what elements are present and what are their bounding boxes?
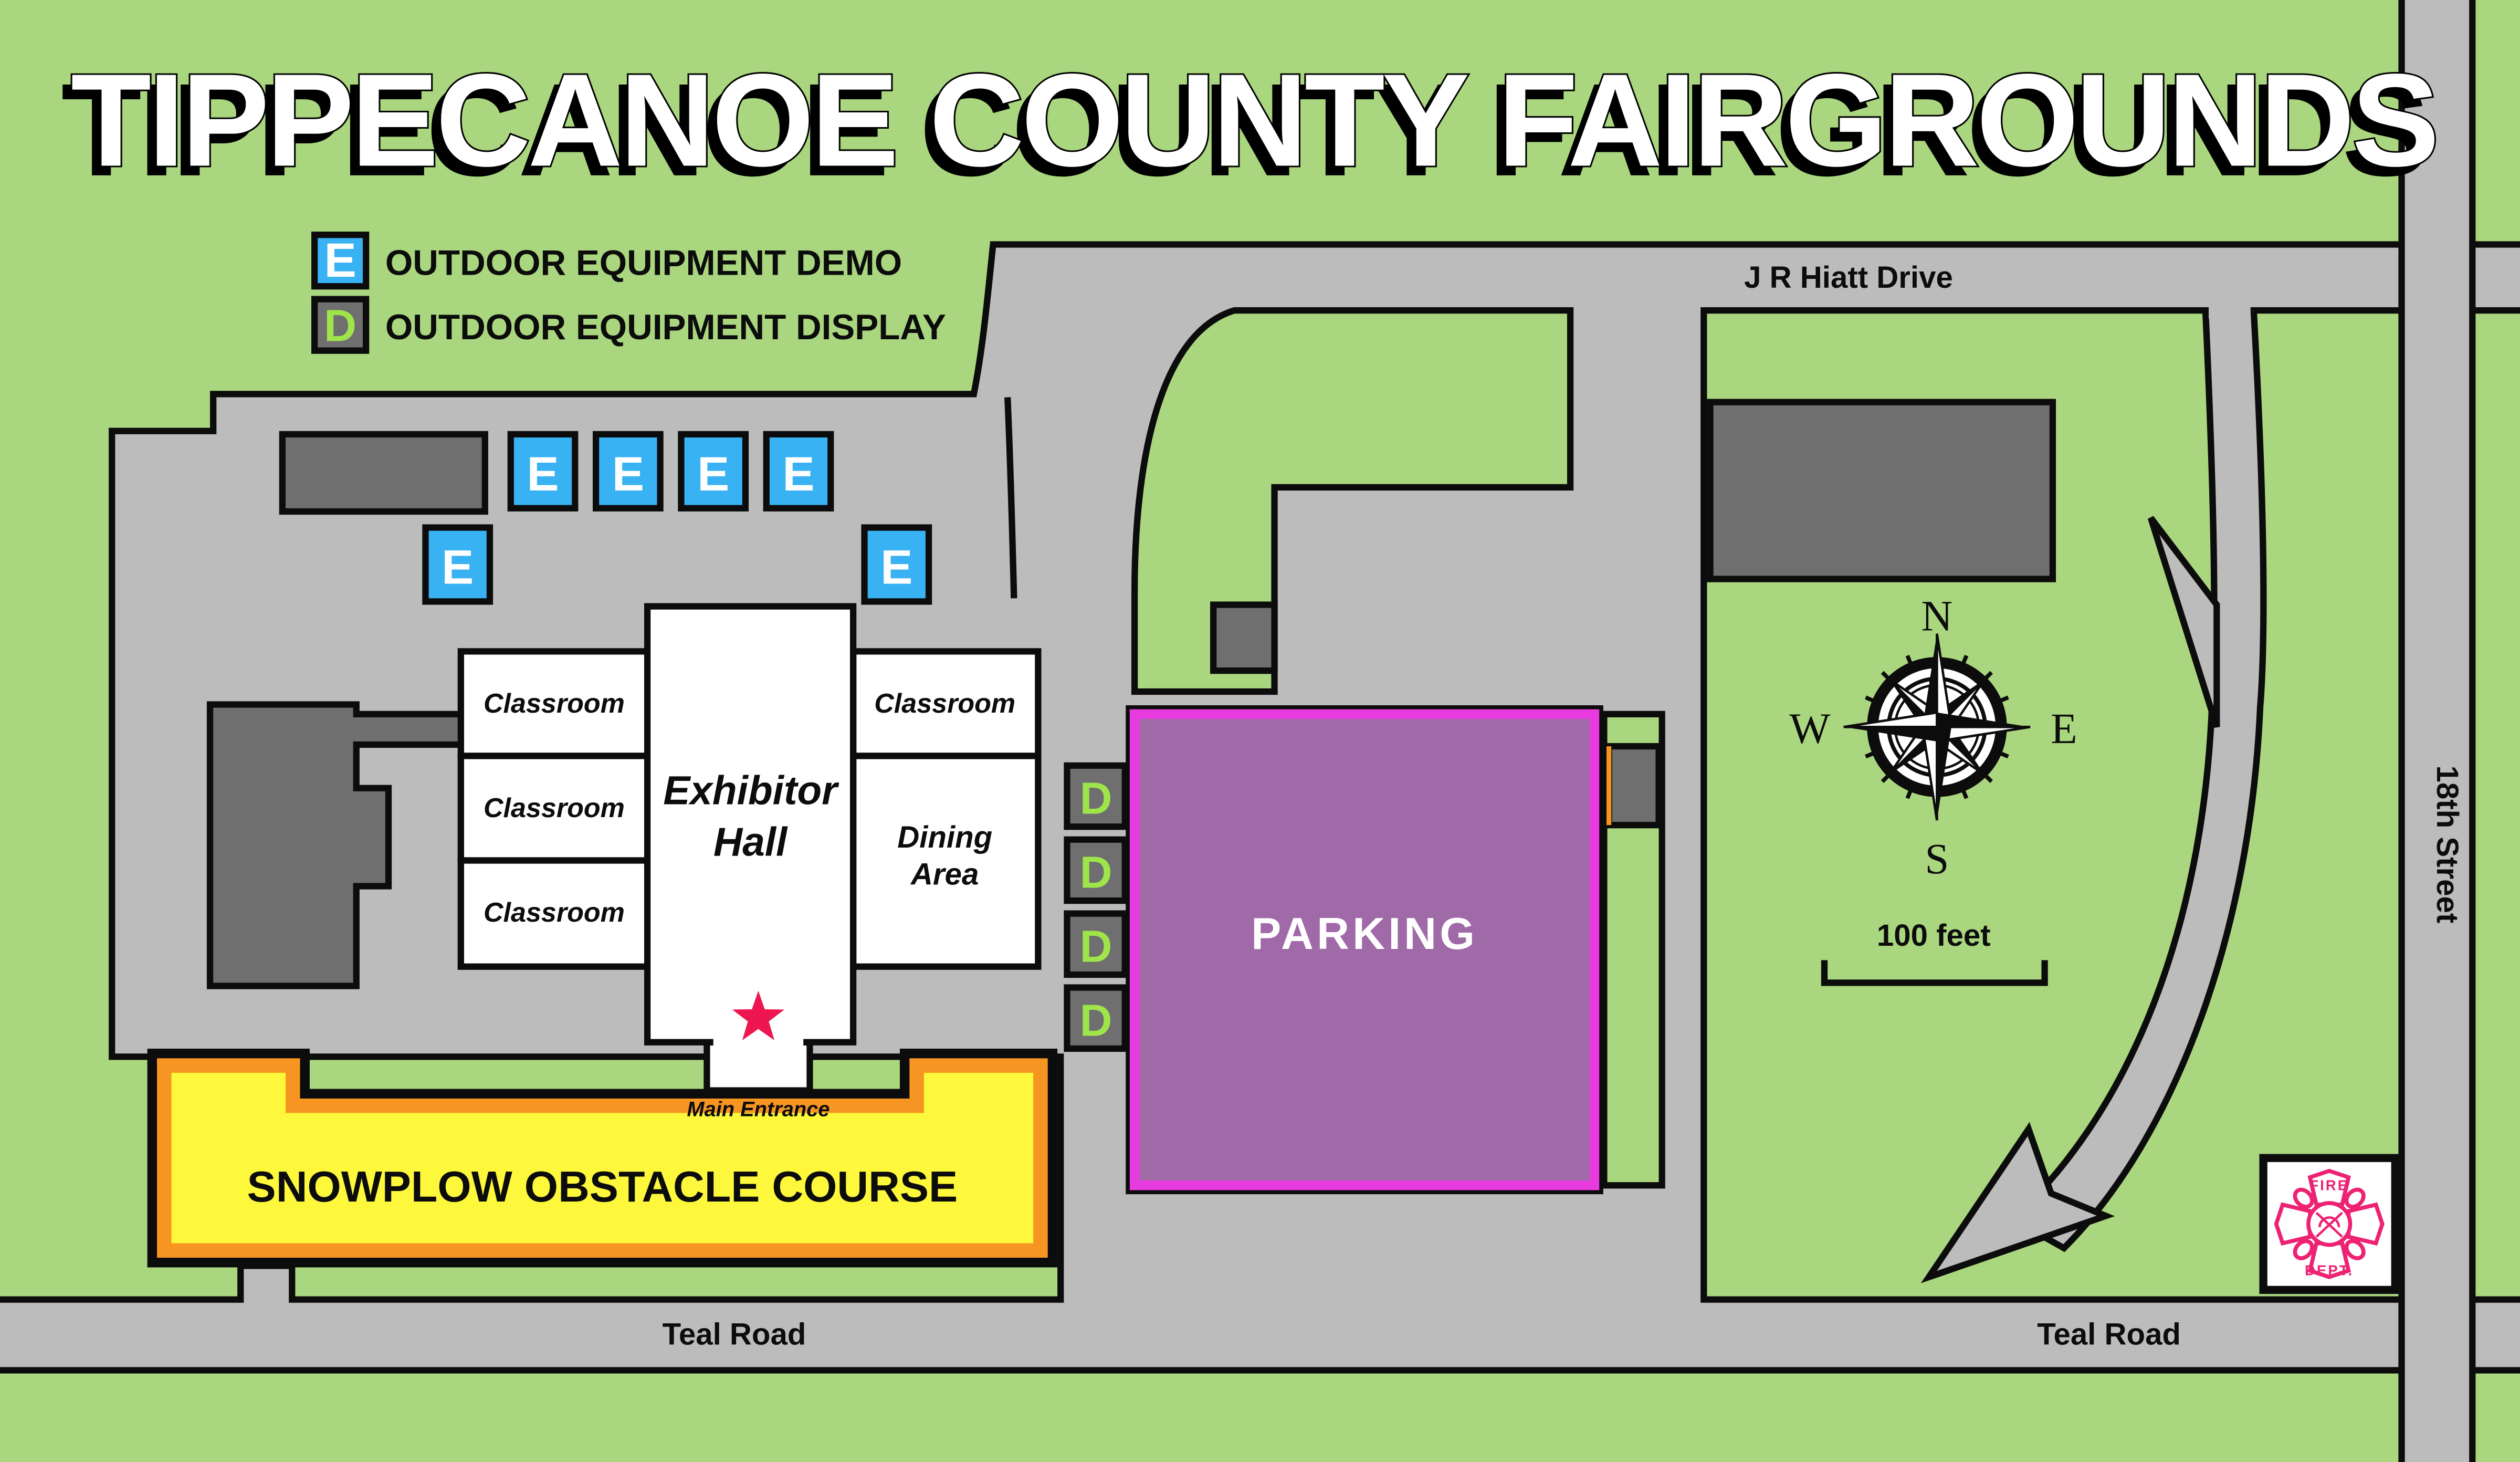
fire-dept-label-1: FIRE (2309, 1177, 2349, 1193)
page-title: TIPPECANOE COUNTY FAIRGROUNDS (71, 47, 2437, 194)
legend-demo-label: OUTDOOR EQUIPMENT DEMO (385, 244, 902, 283)
map-canvas: PARKING D D D D Classroom Classroom Clas… (0, 0, 2520, 1462)
teal-road-label-west: Teal Road (663, 1317, 806, 1351)
e-marker-letter: E (880, 541, 912, 594)
fairgrounds-map: PARKING D D D D Classroom Classroom Clas… (0, 0, 2520, 1462)
building-small-island (1213, 605, 1274, 671)
e-marker-letter: E (697, 447, 729, 501)
classroom-4-label: Classroom (874, 688, 1015, 719)
d-marker-letter: D (1080, 921, 1112, 972)
compass-west-label: W (1789, 704, 1830, 753)
intersection-patch-bottom (2407, 1293, 2467, 1376)
classroom-1-label: Classroom (484, 688, 625, 719)
scale-bar-label: 100 feet (1877, 918, 1991, 953)
e-marker-letter: E (782, 447, 814, 501)
legend-demo-symbol: E (324, 234, 356, 287)
exhibitor-hall-label-1: Exhibitor (663, 768, 839, 813)
snowplow-course-label: SNOWPLOW OBSTACLE COURSE (247, 1162, 958, 1211)
main-entrance-tab (707, 1042, 810, 1091)
e-marker-letter: E (442, 541, 474, 594)
d-marker-letter: D (1080, 848, 1112, 898)
legend-display-label: OUTDOOR EQUIPMENT DISPLAY (385, 308, 946, 347)
entrance-join-patch (713, 1036, 804, 1049)
classroom-3-label: Classroom (484, 897, 625, 928)
dining-area-label-1: Dining (897, 820, 992, 854)
classroom-2-label: Classroom (484, 793, 625, 823)
fire-dept-label-2: DEPT. (2305, 1262, 2354, 1279)
fire-dept-badge: FIRE DEPT. (2263, 1158, 2395, 1290)
building-northeast (1710, 402, 2053, 579)
main-entrance-label: Main Entrance (687, 1098, 829, 1121)
dining-area-label-2: Area (910, 857, 979, 891)
compass-north-label: N (1921, 592, 1953, 640)
compass-east-label: E (2051, 704, 2077, 753)
exhibitor-hall-label-2: Hall (713, 820, 788, 864)
jr-hiatt-drive-label: J R Hiatt Drive (1744, 260, 1953, 295)
building-small-east (1609, 746, 1659, 825)
compass-south-label: S (1925, 834, 1949, 883)
e-marker-letter: E (527, 447, 559, 501)
eighteenth-street-label: 18th Street (2430, 766, 2464, 924)
intersection-patch-branch (2209, 306, 2251, 319)
d-marker-letter: D (1080, 774, 1112, 824)
intersection-patch-top (2407, 238, 2467, 317)
teal-road-label-east: Teal Road (2037, 1317, 2181, 1351)
legend-display-symbol: D (324, 300, 356, 351)
parking-label: PARKING (1251, 908, 1478, 959)
eighteenth-street-road (2402, 0, 2473, 1462)
e-marker-letter: E (612, 447, 644, 501)
building-northwest (282, 434, 485, 511)
d-marker-letter: D (1080, 995, 1112, 1046)
